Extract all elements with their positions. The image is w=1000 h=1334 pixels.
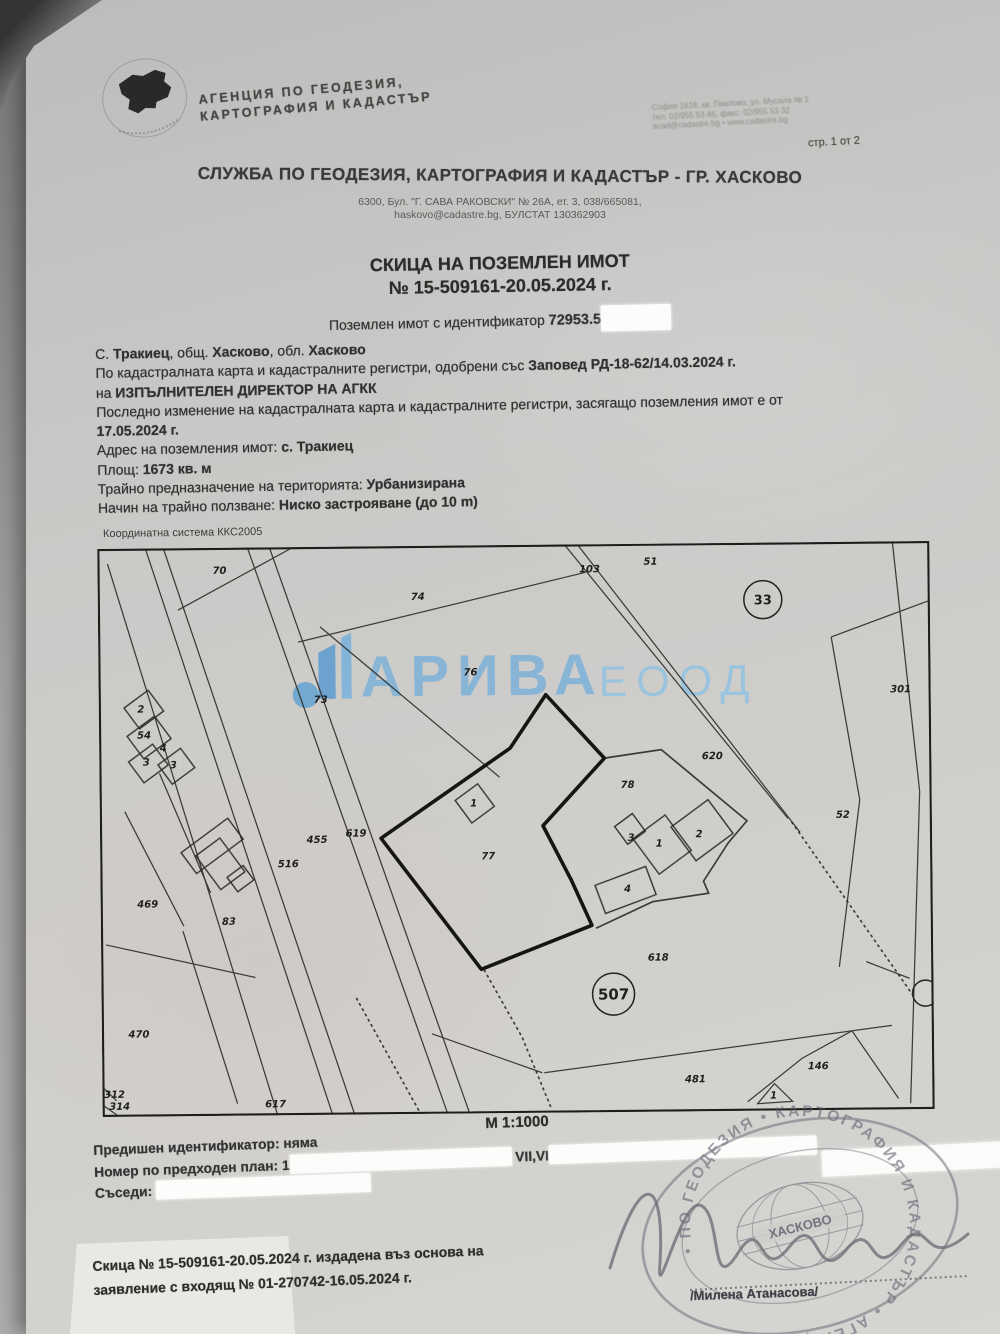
text-segment: с. Тракиец [281,438,353,455]
text-segment: Хасково [212,343,270,360]
map-parcel-label: 314 [109,1102,130,1113]
text-segment: ИЗПЪЛНИТЕЛЕН ДИРЕКТОР НА АГКК [115,379,377,400]
svg-text:33: 33 [754,593,772,608]
identifier-redaction [601,304,672,332]
agency-logo-stamp [75,34,215,165]
map-parcel-label: 78 [621,780,635,791]
map-parcel-label: 516 [278,859,299,870]
map-parcel-label: 1 [470,798,477,809]
map-parcel-label: 83 [222,917,236,928]
map-circled-label: 33 [744,580,782,618]
map-parcel-label: 70 [212,566,226,577]
parcel-line [544,1025,892,1072]
map-border [98,542,933,1116]
text-segment: Ниско застрояване (до 10 m) [279,493,478,513]
parcel-line [183,931,238,1105]
map-parcel-label: 77 [481,851,495,862]
watermark-logo-bar [341,633,352,699]
map-parcel-label: 301 [890,684,911,695]
watermark-name: АРИВА [360,642,604,709]
text-segment: Заповед РД-18-62/14.03.2024 г. [528,354,736,374]
parcel-line [177,547,294,610]
text-segment: , обл. [269,342,308,359]
parcel-line [831,601,928,637]
office-address: 6300, Бул. "Г. САВА РАКОВСКИ" № 26А, ет.… [150,196,850,209]
road-line [145,547,332,1117]
map-parcel-label: 4 [623,884,631,895]
watermark-logo-sail [318,644,336,699]
map-parcel-label: 3 [170,760,177,771]
unpaved-boundary-dotted [484,970,550,1108]
text-segment: Адрес на поземления имот: [97,439,282,458]
text-segment: Начин на трайно ползване: [98,497,279,516]
ariva-watermark: АРИВА ЕООД [292,629,758,710]
text-segment: Тракиец [113,345,170,362]
office-contact: haskovo@cadastre.bg, БУЛСТАТ 130362903 [150,209,850,222]
subject-parcel-outline [380,694,607,970]
map-parcel-label: 455 [306,835,328,846]
building-outline [181,818,243,873]
parcel-boundaries [97,541,932,1117]
unpaved-boundary-dotted [792,821,914,997]
text-segment: 1673 кв. м [143,460,212,477]
svg-text:507: 507 [598,985,629,1003]
text-segment: Хасково [308,341,366,358]
map-parcel-label: 54 [137,730,151,741]
map-parcel-label: 52 [836,810,850,821]
parcel-line [159,773,210,893]
map-parcel-label: 74 [411,592,425,603]
map-parcel-label: 469 [136,899,158,910]
text-segment: Съседи: [95,1184,157,1201]
map-parcel-label: 312 [104,1090,125,1101]
map-parcel-label: 620 [702,751,723,762]
property-details: С. Тракиец, общ. Хасково, обл. ХасковоПо… [95,330,938,519]
buildings [124,685,734,918]
text-segment: Площ: [97,461,143,478]
map-parcel-label: 1 [656,839,663,850]
map-parcel-label: 2 [137,705,144,716]
bulgaria-map-silhouette [117,68,174,116]
text-segment: на [96,384,116,400]
map-parcel-label: 73 [314,695,328,706]
unpaved-boundary-dotted [357,998,421,1115]
parcel-line [106,944,255,979]
text-segment: Трайно предназначение на територията: [97,476,366,497]
parcel-line [866,961,909,978]
map-parcel-label: 51 [643,557,657,568]
map-parcel-label: 1 [770,1091,777,1102]
map-parcel-label: 76 [463,667,477,678]
map-parcel-label: 618 [648,953,669,964]
building-outline [196,838,245,890]
map-parcel-label: 146 [808,1061,829,1072]
road-line [269,545,469,1115]
map-parcel-label: 619 [346,828,367,839]
office-address-block: 6300, Бул. "Г. САВА РАКОВСКИ" № 26А, ет.… [150,196,850,222]
road-line [892,541,922,1103]
map-parcel-label: 2 [696,829,703,840]
map-circled-label: 507 [592,973,634,1015]
building-outline [227,865,254,891]
identifier-value: 72953.5 [548,312,601,329]
text-segment: Урбанизирана [366,474,465,492]
dotted-boundaries [355,821,915,1114]
map-parcel-label: 481 [684,1074,706,1085]
signature-stroke [610,1194,968,1275]
watermark-suffix: ЕООД [598,657,758,707]
text-segment: VII,VI [511,1148,549,1164]
identifier-label: Поземлен имот с идентификатор [329,312,545,333]
text-segment: 17.05.2024 г. [96,422,179,440]
map-parcel-label: 4 [159,743,167,754]
map-parcel-label: 103 [579,564,600,575]
map-circled-label [912,980,934,1006]
map-parcel-label: 617 [265,1099,286,1110]
map-parcel-label: 470 [127,1030,149,1041]
text-segment: С. [95,346,113,362]
photographed-document: АГЕНЦИЯ ПО ГЕОДЕЗИЯ, КАРТОГРАФИЯ И КАДАС… [0,0,1000,1334]
coordinate-system-label: Координатна система ККС2005 [103,526,262,540]
text-segment: , общ. [169,344,212,361]
map-parcel-label: 3 [143,758,150,769]
parcel-line [831,637,861,967]
cadastral-map: АРИВА ЕООД [97,541,934,1117]
map-parcel-label: 3 [628,833,635,844]
parcel-line [298,572,587,642]
parcel-78-outline [594,749,748,928]
